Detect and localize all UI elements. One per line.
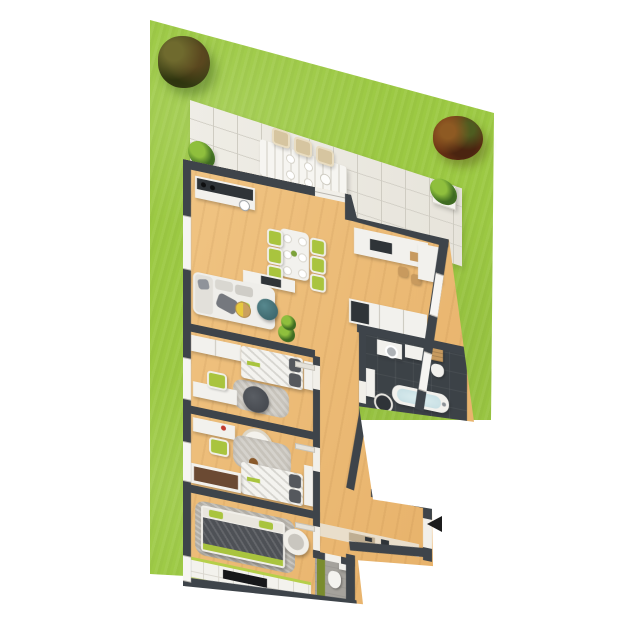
dining-chair <box>310 273 326 293</box>
sofa-cushion <box>215 279 233 293</box>
dining-chair <box>310 255 326 275</box>
wc-green-wall <box>317 557 325 597</box>
entrance-arrow-icon <box>427 516 442 532</box>
pillow <box>289 373 301 389</box>
plate <box>286 153 295 165</box>
plate <box>283 233 292 244</box>
plate <box>304 161 313 173</box>
plate <box>298 252 307 263</box>
vase-icon <box>291 250 297 257</box>
teapot <box>320 172 331 187</box>
closet-open-section <box>351 301 369 325</box>
floor-plan-scene <box>0 0 644 644</box>
bedroom2-window <box>183 441 191 483</box>
hob-burner-icon <box>210 185 215 191</box>
closet-divider <box>403 310 404 334</box>
dining-chair <box>267 246 283 266</box>
wall-left <box>183 159 191 588</box>
red-lamp-icon <box>221 425 226 431</box>
garden-tree-dark-icon <box>158 36 210 88</box>
dining-table <box>280 228 309 282</box>
wardrobe-divider <box>215 340 216 356</box>
master-window <box>183 555 191 583</box>
green-accent <box>247 477 260 484</box>
bathroom-door-opening <box>359 380 366 403</box>
plate <box>298 268 307 279</box>
dining-chair <box>310 237 326 257</box>
pillow <box>289 474 301 490</box>
plate <box>283 265 292 276</box>
plate <box>286 169 295 181</box>
plate <box>298 236 307 247</box>
bar-stool <box>398 266 408 278</box>
cooktop-icon <box>370 239 392 255</box>
gray-pillow <box>197 279 210 289</box>
wall-bathroom-left <box>359 332 366 415</box>
bath-faucet-icon <box>442 402 446 407</box>
green-accent <box>247 361 260 368</box>
papasan-cushion <box>288 532 304 551</box>
hob-burner-icon <box>201 182 206 188</box>
living-window <box>183 215 191 271</box>
bedroom1-window <box>183 357 191 401</box>
sofa-cushion <box>235 284 253 298</box>
garden-tree-red-icon <box>433 116 483 160</box>
closet-divider <box>379 305 380 329</box>
pillow <box>289 489 301 505</box>
bedroom2-shelf <box>304 465 313 507</box>
dining-chair <box>267 228 283 248</box>
